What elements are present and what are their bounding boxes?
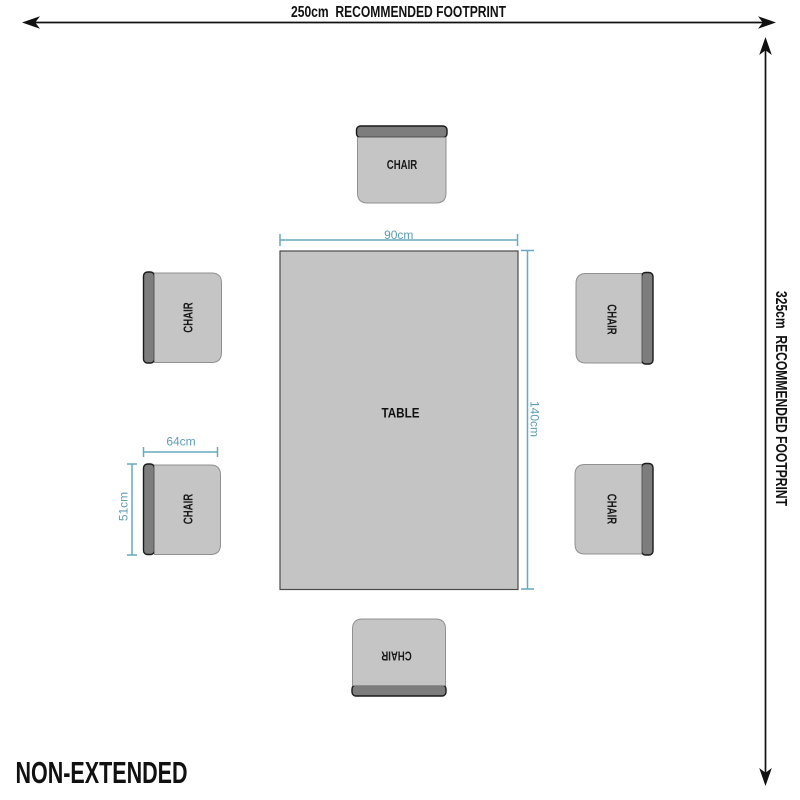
svg-text:90cm: 90cm xyxy=(384,228,413,242)
svg-text:140cm: 140cm xyxy=(528,401,542,437)
svg-text:64cm: 64cm xyxy=(166,435,195,449)
svg-text:NON-EXTENDED: NON-EXTENDED xyxy=(16,756,188,790)
svg-text:250cm RECOMMENDED FOOTPRINT: 250cm RECOMMENDED FOOTPRINT xyxy=(291,4,506,21)
svg-text:CHAIR: CHAIR xyxy=(381,649,412,664)
svg-text:TABLE: TABLE xyxy=(382,406,420,421)
svg-text:CHAIR: CHAIR xyxy=(387,157,418,172)
svg-text:325cm RECOMMENDED FOOTPRINT: 325cm RECOMMENDED FOOTPRINT xyxy=(772,291,789,506)
svg-text:CHAIR: CHAIR xyxy=(181,302,196,333)
svg-text:51cm: 51cm xyxy=(117,492,131,521)
svg-text:CHAIR: CHAIR xyxy=(605,494,620,525)
svg-text:CHAIR: CHAIR xyxy=(605,304,620,335)
svg-text:CHAIR: CHAIR xyxy=(181,493,196,524)
